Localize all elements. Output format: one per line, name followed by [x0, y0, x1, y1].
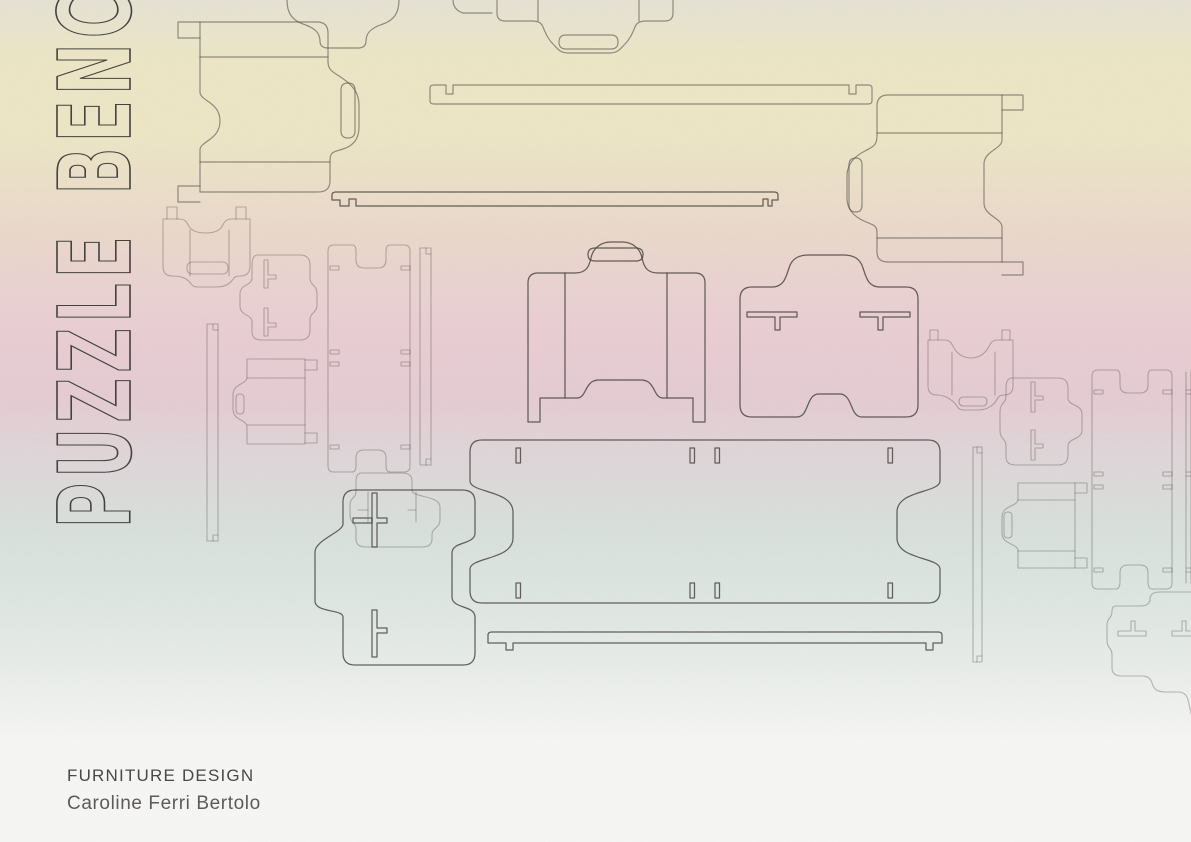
- paper-texture: [0, 0, 1191, 842]
- poster-title-vertical: PUZZLE BENCH: [40, 132, 152, 529]
- footer-author: Caroline Ferri Bertolo: [67, 793, 261, 815]
- cnc-parts-drawing: [0, 0, 1191, 842]
- poster-page: PUZZLE BENCH FURNITURE DESIGN Caroline F…: [0, 0, 1191, 842]
- footer-category: FURNITURE DESIGN: [67, 766, 261, 786]
- footer: FURNITURE DESIGN Caroline Ferri Bertolo: [67, 766, 261, 815]
